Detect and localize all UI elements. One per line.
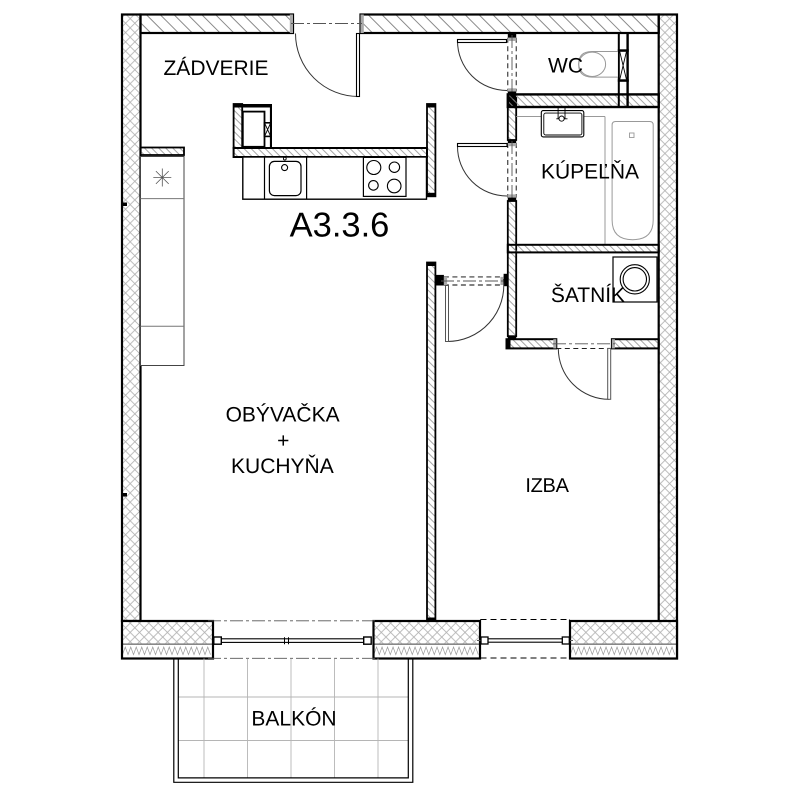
svg-text:BALKÓN: BALKÓN (251, 706, 336, 730)
svg-text:ŠATNÍK: ŠATNÍK (551, 283, 625, 307)
svg-text:KÚPEĽŇA: KÚPEĽŇA (541, 160, 639, 184)
svg-text:KUCHYŇA: KUCHYŇA (231, 454, 334, 478)
svg-text:IZBA: IZBA (525, 475, 569, 497)
svg-text:OBÝVAČKA: OBÝVAČKA (226, 403, 340, 427)
svg-text:+: + (277, 429, 289, 452)
svg-text:WC: WC (548, 54, 583, 77)
svg-text:A3.3.6: A3.3.6 (290, 207, 390, 245)
svg-text:ZÁDVERIE: ZÁDVERIE (163, 56, 268, 80)
